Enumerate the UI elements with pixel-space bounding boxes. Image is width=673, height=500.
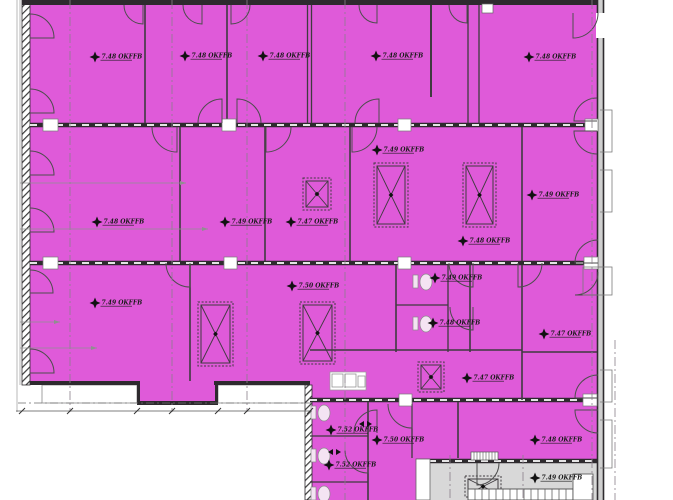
elevation-label: 7.49 OKFFB	[539, 192, 580, 199]
elevation-label: 7.48 OKFFB	[104, 219, 145, 226]
elevation-label: 7.48 OKFFB	[470, 238, 511, 245]
elevation-label: 7.48 OKFFB	[102, 54, 143, 61]
elevation-label: 7.49 OKFFB	[384, 147, 425, 154]
elevation-label: 7.48 OKFFB	[270, 53, 311, 60]
wall-opening	[399, 394, 412, 406]
elevation-label: 7.48 OKFFB	[383, 53, 424, 60]
toilet-symbol	[413, 316, 432, 332]
toilet-tank	[413, 275, 418, 288]
elevation-label: 7.52 OKFFB	[336, 462, 377, 469]
elevation-label: 7.49 OKFFB	[442, 275, 483, 282]
toilet-symbol	[311, 448, 330, 464]
floor-plan-svg: 7.48 OKFFB7.48 OKFFB7.48 OKFFB7.48 OKFFB…	[0, 0, 673, 500]
elevation-label: 7.47 OKFFB	[474, 375, 515, 382]
toilet-tank	[311, 487, 316, 500]
exterior-wall-segment	[30, 381, 140, 385]
elevation-label: 7.50 OKFFB	[299, 283, 340, 290]
elevation-label: 7.48 OKFFB	[542, 437, 583, 444]
sink-symbol	[358, 376, 365, 387]
sink-symbol	[345, 374, 356, 387]
wall-opening	[222, 119, 236, 131]
terrace-right	[218, 385, 310, 403]
toilet-tank	[413, 317, 418, 330]
room-area-tongue	[137, 385, 218, 403]
toilet-tank	[311, 449, 316, 462]
toilet-symbol	[311, 405, 330, 421]
elevation-label: 7.52 OKFFB	[338, 427, 379, 434]
exterior-wall-segment	[137, 381, 140, 405]
room-fill-areas	[30, 5, 597, 500]
stair-wall-slot	[416, 459, 430, 500]
wall-opening	[43, 257, 58, 269]
wall-opening	[398, 119, 411, 131]
exterior-wall-segment	[215, 381, 218, 405]
toilet-bowl	[318, 405, 330, 421]
toilet-symbol	[311, 486, 330, 500]
wall-opening	[583, 394, 597, 406]
exterior-wall-segment	[214, 381, 310, 385]
room-area-right-wing	[310, 385, 597, 460]
exterior-wall-top	[22, 0, 604, 5]
wall-opening	[43, 119, 58, 131]
elevation-label: 7.49 OKFFB	[102, 300, 143, 307]
wall-opening	[224, 257, 237, 269]
stair-vent-grille	[471, 452, 498, 460]
elevation-label: 7.48 OKFFB	[536, 54, 577, 61]
wall-opening	[398, 257, 411, 269]
toilet-bowl	[318, 486, 330, 500]
elevation-label: 7.48 OKFFB	[192, 53, 233, 60]
elevation-label: 7.49 OKFFB	[232, 219, 273, 226]
terrace-left	[42, 385, 137, 403]
stair-flight	[468, 489, 573, 500]
toilet-tank	[311, 406, 316, 419]
elevation-label: 7.50 OKFFB	[384, 437, 425, 444]
toilet-bowl	[420, 274, 432, 290]
elevation-label: 7.48 OKFFB	[440, 320, 481, 327]
exterior-wall-left	[22, 0, 30, 385]
room-area-main	[30, 5, 597, 385]
elevation-label: 7.47 OKFFB	[551, 331, 592, 338]
toilet-symbol	[413, 274, 432, 290]
elevation-label: 7.47 OKFFB	[298, 219, 339, 226]
floor-plan-canvas: 7.48 OKFFB7.48 OKFFB7.48 OKFFB7.48 OKFFB…	[0, 0, 673, 500]
sink-symbol	[332, 374, 343, 387]
elevation-label: 7.49 OKFFB	[542, 475, 583, 482]
duct-box	[482, 4, 493, 13]
